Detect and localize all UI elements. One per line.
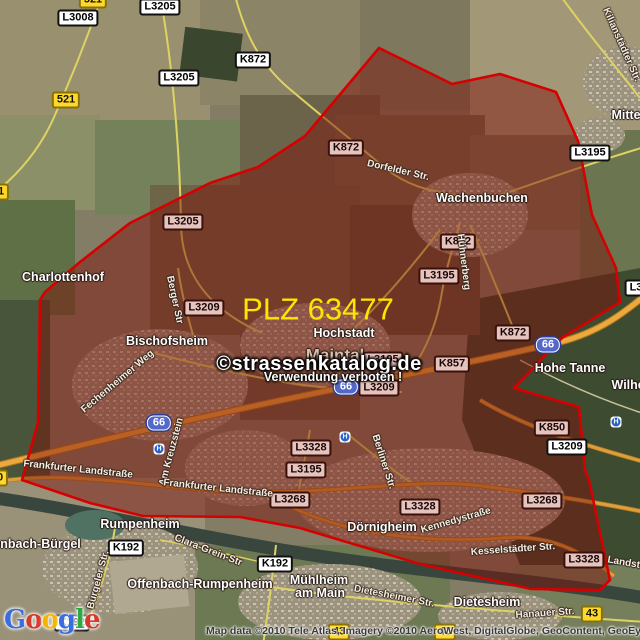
town-label: Dietesheim	[454, 596, 521, 609]
logo-letter: G	[4, 605, 25, 635]
motorway-badge: 66	[536, 338, 560, 353]
road-badge: L3195	[569, 145, 610, 162]
bus-stop-icon: H	[611, 417, 622, 428]
road-badge: L3268	[521, 493, 562, 510]
town-label: Hochstadt	[313, 327, 374, 340]
bus-stop-glyph: H	[612, 418, 621, 427]
road-badge: L3205	[139, 0, 180, 16]
town-label: Charlottenhof	[22, 271, 104, 284]
town-label: Bischofsheim	[126, 335, 208, 348]
route-badge: 1	[0, 184, 9, 201]
road-badge: L3328	[563, 552, 604, 569]
road-badge: K857	[434, 356, 470, 373]
google-logo[interactable]: Google	[4, 607, 100, 633]
road-badge: L3328	[399, 499, 440, 516]
logo-letter: o	[25, 605, 41, 635]
route-badge: 521	[52, 92, 80, 109]
road-badge: L3205	[158, 70, 199, 87]
logo-letter: e	[84, 605, 100, 635]
road-badge: K192	[108, 540, 144, 557]
logo-letter: g	[58, 605, 75, 635]
town-label: Offenbach-Rumpenheim	[127, 578, 272, 591]
motorway-badge: 66	[147, 416, 171, 431]
bus-stop-glyph: H	[341, 433, 350, 442]
town-label: Wilhelmsbad	[612, 379, 640, 392]
road-badge: K192	[257, 556, 293, 573]
road-badge: K872	[328, 140, 364, 157]
town-label: am Main	[295, 587, 345, 600]
bus-stop-glyph: H	[155, 445, 164, 454]
map-attribution: Map data ©2010 Tele Atlas, Imagery ©2010…	[206, 626, 640, 637]
road-badge: L3195	[285, 462, 326, 479]
town-label: Offenbach-Bürgel	[0, 538, 81, 551]
route-badge: 43	[581, 606, 603, 623]
watermark-warning: Verwendung verboten !	[264, 371, 402, 384]
road-badge: L3195	[418, 268, 459, 285]
road-badge: L3209	[546, 439, 587, 456]
town-label: Mittelbuchen	[611, 109, 640, 122]
town-label: Hohe Tanne	[535, 362, 606, 375]
road-badge: K872	[495, 325, 531, 342]
town-label: Rumpenheim	[100, 518, 179, 531]
town-label: Dörnigheim	[347, 521, 416, 534]
map-viewport[interactable]: L3008 L3205 K872 L3205 L3195 K192 K192 K…	[0, 0, 640, 640]
bus-stop-icon: H	[154, 444, 165, 455]
road-badge: L3268	[269, 492, 310, 509]
route-badge: 521	[79, 0, 107, 9]
road-badge: L3328	[290, 440, 331, 457]
road-badge: K872	[235, 52, 271, 69]
bus-stop-icon: H	[340, 432, 351, 443]
road-badge: L3	[625, 280, 640, 297]
road-badge: L3008	[57, 10, 98, 27]
town-label: Mühlheim	[290, 574, 348, 587]
route-badge: 0	[0, 470, 8, 487]
road-badge: L3209	[183, 300, 224, 317]
plz-area-label: PLZ 63477	[242, 294, 394, 325]
town-label: Wachenbuchen	[436, 192, 528, 205]
road-badge: K850	[534, 420, 570, 437]
logo-letter: l	[75, 605, 84, 635]
road-badge: L3205	[162, 214, 203, 231]
logo-letter: o	[42, 605, 58, 635]
